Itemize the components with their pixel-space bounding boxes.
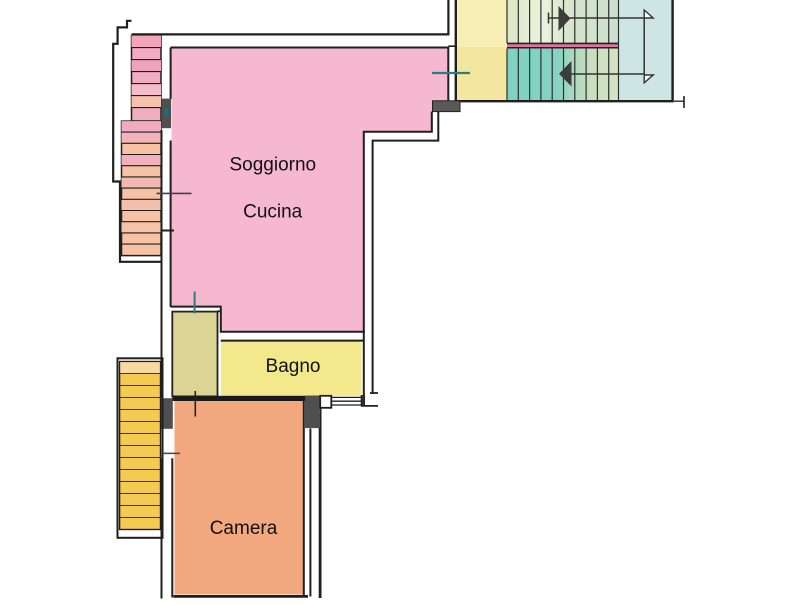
- svg-text:Camera: Camera: [210, 518, 278, 539]
- svg-text:Cucina: Cucina: [243, 202, 303, 223]
- svg-text:Bagno: Bagno: [266, 356, 321, 377]
- svg-text:Soggiorno: Soggiorno: [229, 155, 316, 176]
